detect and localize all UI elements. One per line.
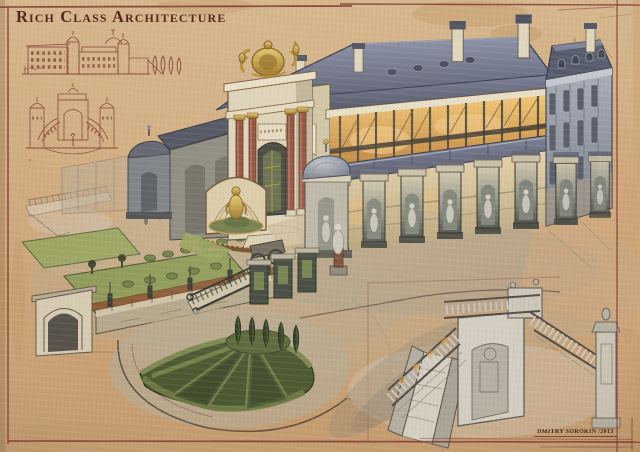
artist-signature: Dmitry Sorokin /2013 bbox=[534, 429, 617, 437]
concept-art-page: Rich Class Architecture Dmitry Sorokin /… bbox=[0, 0, 640, 452]
artwork-title: Rich Class Architecture bbox=[16, 7, 226, 27]
vignette-overlay bbox=[0, 0, 640, 452]
concept-art-canvas bbox=[0, 0, 640, 452]
